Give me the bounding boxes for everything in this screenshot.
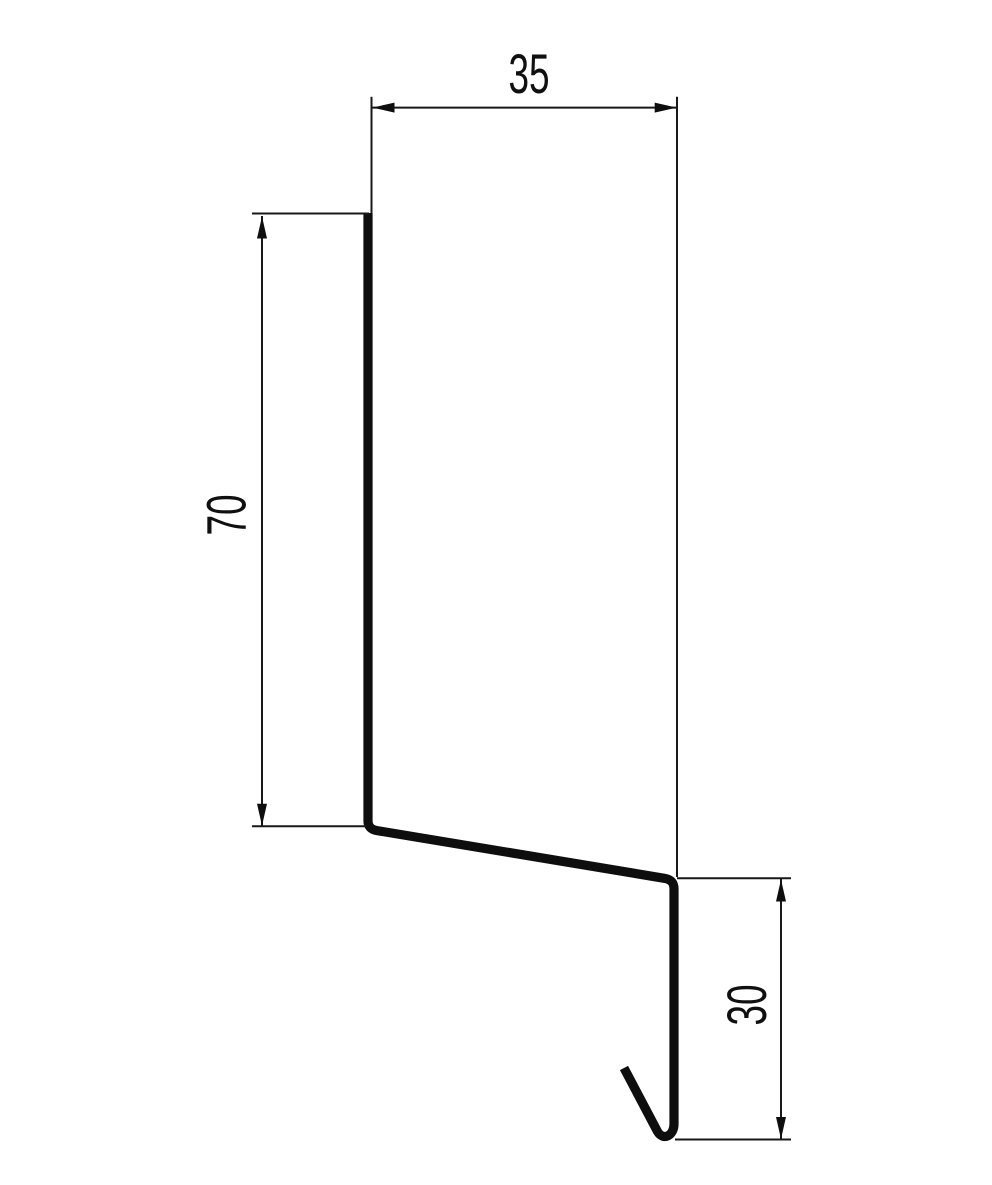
svg-text:70: 70 <box>196 494 259 535</box>
svg-text:35: 35 <box>508 43 549 106</box>
svg-text:30: 30 <box>716 984 779 1025</box>
